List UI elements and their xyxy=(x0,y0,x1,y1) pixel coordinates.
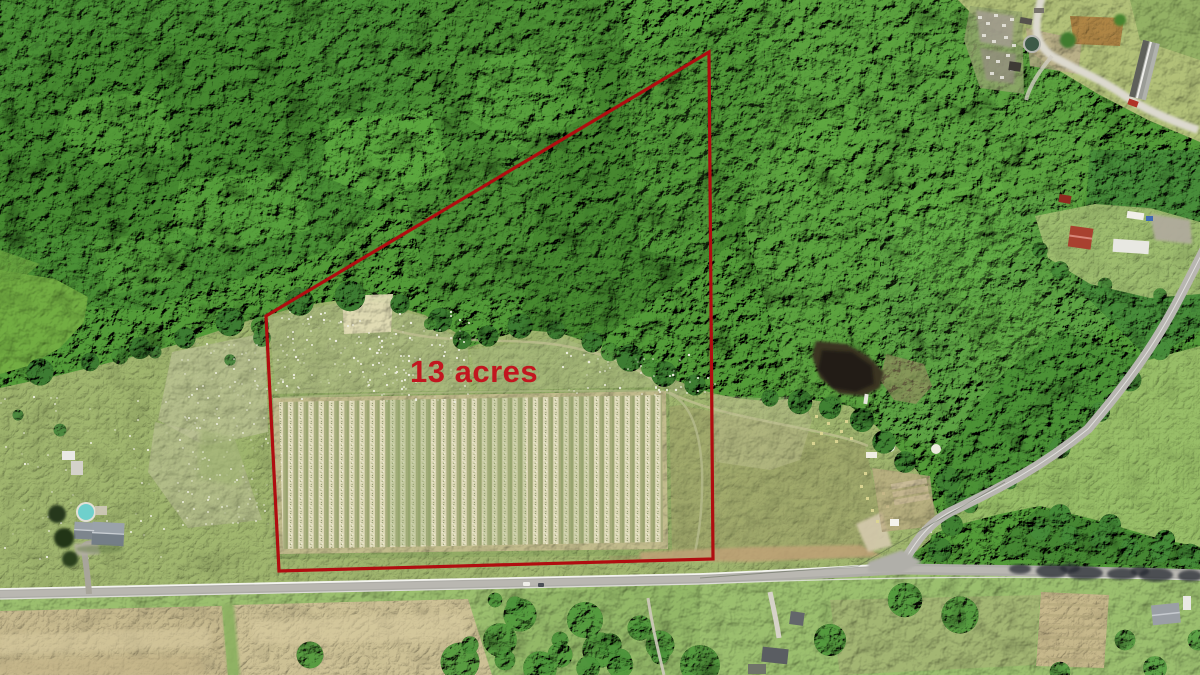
svg-text:13 acres: 13 acres xyxy=(410,354,538,389)
